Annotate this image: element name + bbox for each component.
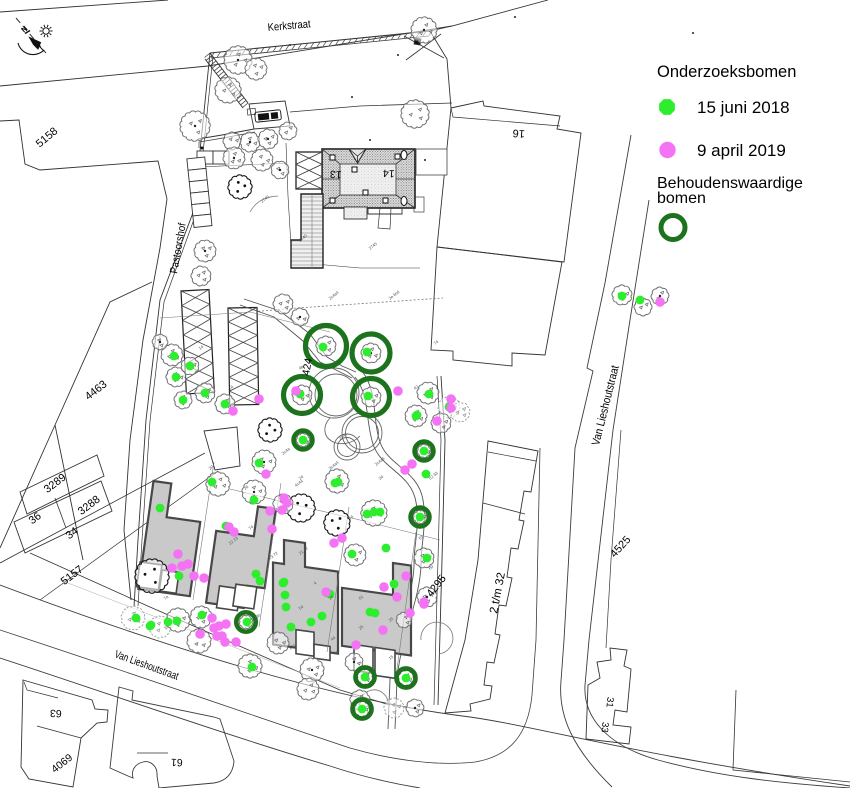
- svg-text:Onderzoeksbomen: Onderzoeksbomen: [657, 63, 796, 81]
- svg-text:33: 33: [598, 721, 610, 733]
- svg-text:16: 16: [512, 127, 525, 140]
- svg-text:14: 14: [382, 167, 395, 180]
- svg-text:bomen: bomen: [657, 190, 706, 207]
- svg-text:13: 13: [329, 168, 342, 181]
- svg-text:15 juni 2018: 15 juni 2018: [697, 98, 790, 117]
- svg-text:9 april 2019: 9 april 2019: [697, 141, 786, 160]
- svg-text:61: 61: [171, 756, 183, 769]
- svg-text:31: 31: [603, 696, 615, 708]
- svg-text:63: 63: [50, 707, 62, 720]
